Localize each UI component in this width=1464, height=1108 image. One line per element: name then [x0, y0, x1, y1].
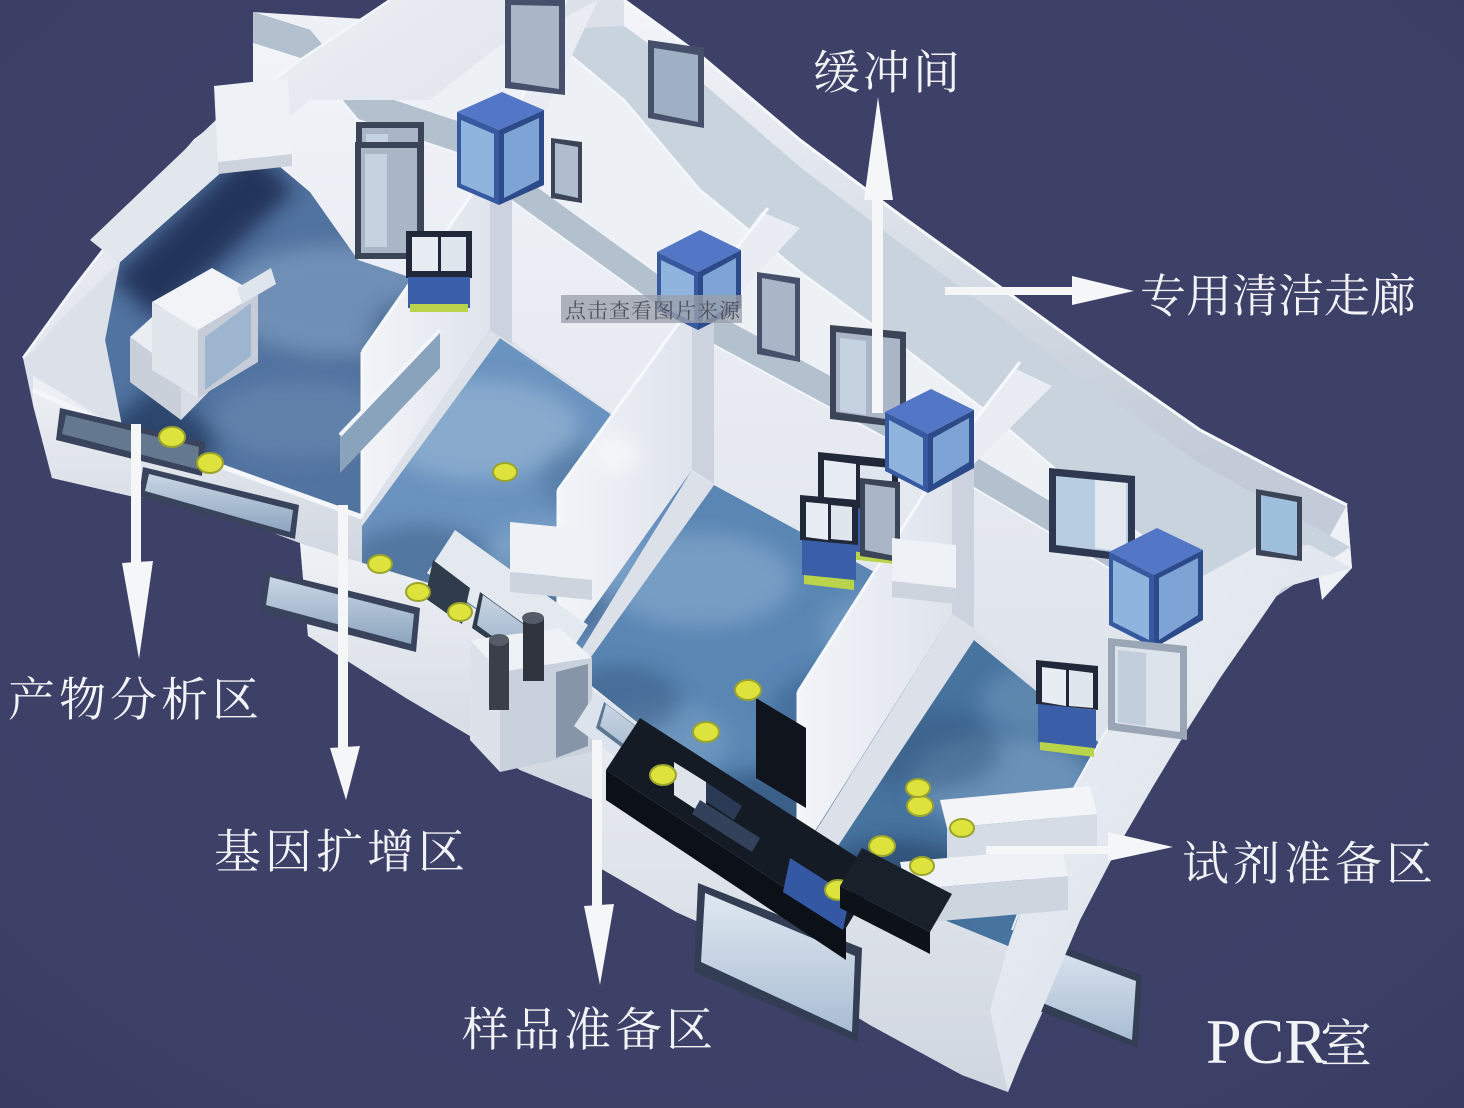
- svg-text:PCR: PCR: [1206, 1006, 1327, 1077]
